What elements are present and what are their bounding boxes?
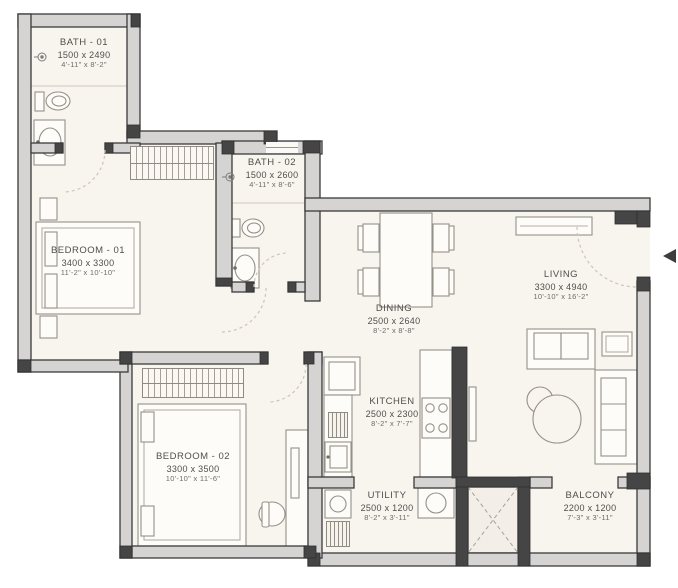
living-side-table	[602, 332, 632, 356]
floor-plan-graphics	[0, 0, 678, 588]
bath1-toilet	[35, 92, 70, 111]
living-three-seat-sofa	[595, 370, 637, 464]
kitchen-fridge	[324, 357, 360, 395]
utility-sink	[418, 488, 454, 518]
utility-washer-hatch	[326, 521, 350, 547]
kitchen-door-leaf	[469, 387, 476, 441]
bedroom2-desk	[286, 430, 308, 548]
bedroom2-wardrobe	[142, 368, 244, 398]
bedroom2-chair	[259, 502, 285, 527]
kitchen-counter-hob	[420, 350, 452, 477]
bedroom1-wardrobe	[130, 146, 214, 180]
bedroom2-bed	[138, 404, 246, 546]
living-tv-console	[516, 217, 592, 235]
bath2-window	[266, 142, 298, 153]
living-loveseat-sofa	[527, 329, 595, 369]
floor-plan: BATH - 01 1500 x 2490 4'-11" x 8'-2" BAT…	[0, 0, 678, 588]
bath2-toilet	[231, 219, 264, 237]
kitchen-sink-hatch	[328, 412, 348, 438]
utility-counter	[325, 490, 351, 518]
shaft	[468, 487, 518, 553]
entry-arrow-icon	[663, 249, 676, 263]
